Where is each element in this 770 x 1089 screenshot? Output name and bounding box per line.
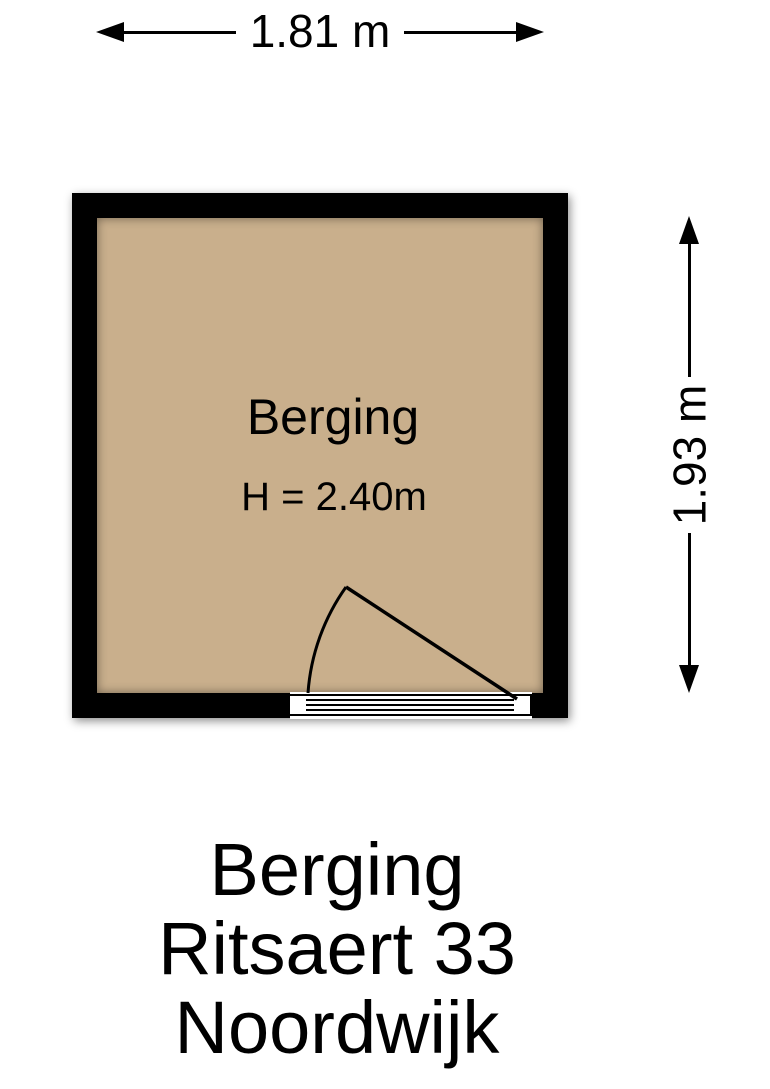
plan-caption: Berging Ritsaert 33 Noordwijk	[158, 830, 516, 1067]
dimension-line	[404, 31, 516, 34]
room-floor: Berging H = 2.40m	[97, 218, 543, 693]
floorplan-canvas: 1.81 m 1.93 m Berging H = 2.40m Berging …	[0, 0, 770, 1089]
dimension-width-label: 1.81 m	[236, 8, 405, 54]
door-threshold	[306, 694, 514, 716]
dimension-line	[688, 533, 691, 666]
room-ceiling-height-label: H = 2.40m	[241, 477, 427, 517]
dimension-height-label-box: 1.93 m	[672, 377, 706, 533]
arrowhead-right-icon	[516, 22, 544, 42]
dimension-line	[124, 31, 236, 34]
dimension-height: 1.93 m	[672, 216, 706, 693]
room-name-label: Berging	[247, 392, 419, 442]
dimension-line	[688, 244, 691, 377]
arrowhead-up-icon	[679, 216, 699, 244]
dimension-width: 1.81 m	[96, 14, 544, 50]
door-jamb-right	[512, 694, 532, 716]
door-jamb-left	[288, 694, 308, 716]
arrowhead-down-icon	[679, 665, 699, 693]
arrowhead-left-icon	[96, 22, 124, 42]
caption-address: Ritsaert 33	[158, 909, 516, 988]
caption-city: Noordwijk	[158, 988, 516, 1067]
dimension-height-label: 1.93 m	[666, 384, 712, 525]
room-berging: Berging H = 2.40m	[72, 193, 568, 718]
caption-room: Berging	[158, 830, 516, 909]
